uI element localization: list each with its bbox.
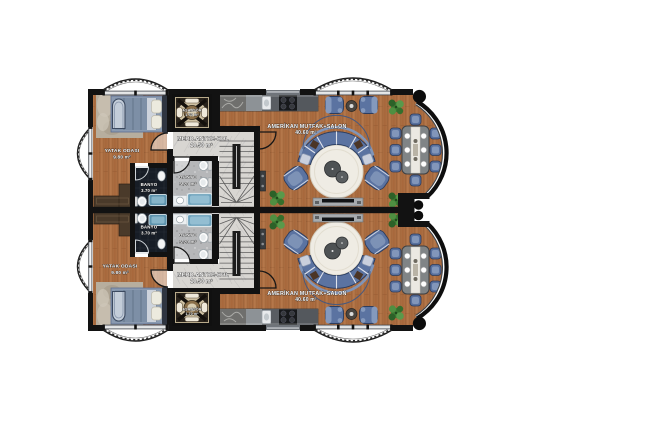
svg-text:1.70 m²: 1.70 m² xyxy=(185,113,199,117)
svg-text:BANYO: BANYO xyxy=(141,182,158,187)
svg-text:9.80 m²: 9.80 m² xyxy=(111,270,129,275)
svg-text:3.70 m²: 3.70 m² xyxy=(141,231,157,236)
svg-text:AMERİKAN MUTFAK+SALON: AMERİKAN MUTFAK+SALON xyxy=(267,290,346,297)
svg-text:40.60 m²: 40.60 m² xyxy=(295,297,317,303)
svg-text:YATAK ODASI: YATAK ODASI xyxy=(105,148,140,154)
svg-text:10.50 m²: 10.50 m² xyxy=(190,143,212,149)
svg-text:9.80 m²: 9.80 m² xyxy=(113,155,131,160)
svg-text:YATAK ODASI: YATAK ODASI xyxy=(103,264,138,270)
svg-text:ASANSÖR: ASANSÖR xyxy=(182,307,202,312)
svg-text:5.20 m²: 5.20 m² xyxy=(180,240,197,245)
svg-text:BANYO: BANYO xyxy=(141,225,158,230)
svg-text:1.70 m²: 1.70 m² xyxy=(185,312,199,316)
svg-text:10.50 m²: 10.50 m² xyxy=(190,279,212,285)
svg-text:5.20 m²: 5.20 m² xyxy=(180,182,197,187)
svg-text:40.60 m²: 40.60 m² xyxy=(295,130,317,136)
svg-text:ASANSÖR: ASANSÖR xyxy=(182,108,202,113)
svg-text:MERD.ANTRE-HOL: MERD.ANTRE-HOL xyxy=(177,136,229,142)
svg-text:AMERİKAN MUTFAK+SALON: AMERİKAN MUTFAK+SALON xyxy=(267,123,346,130)
svg-text:MERD.ANTRE-HOL: MERD.ANTRE-HOL xyxy=(177,272,229,278)
svg-text:3.70 m²: 3.70 m² xyxy=(141,188,157,193)
svg-text:BANYO: BANYO xyxy=(179,175,197,180)
svg-text:BANYO: BANYO xyxy=(179,233,197,238)
